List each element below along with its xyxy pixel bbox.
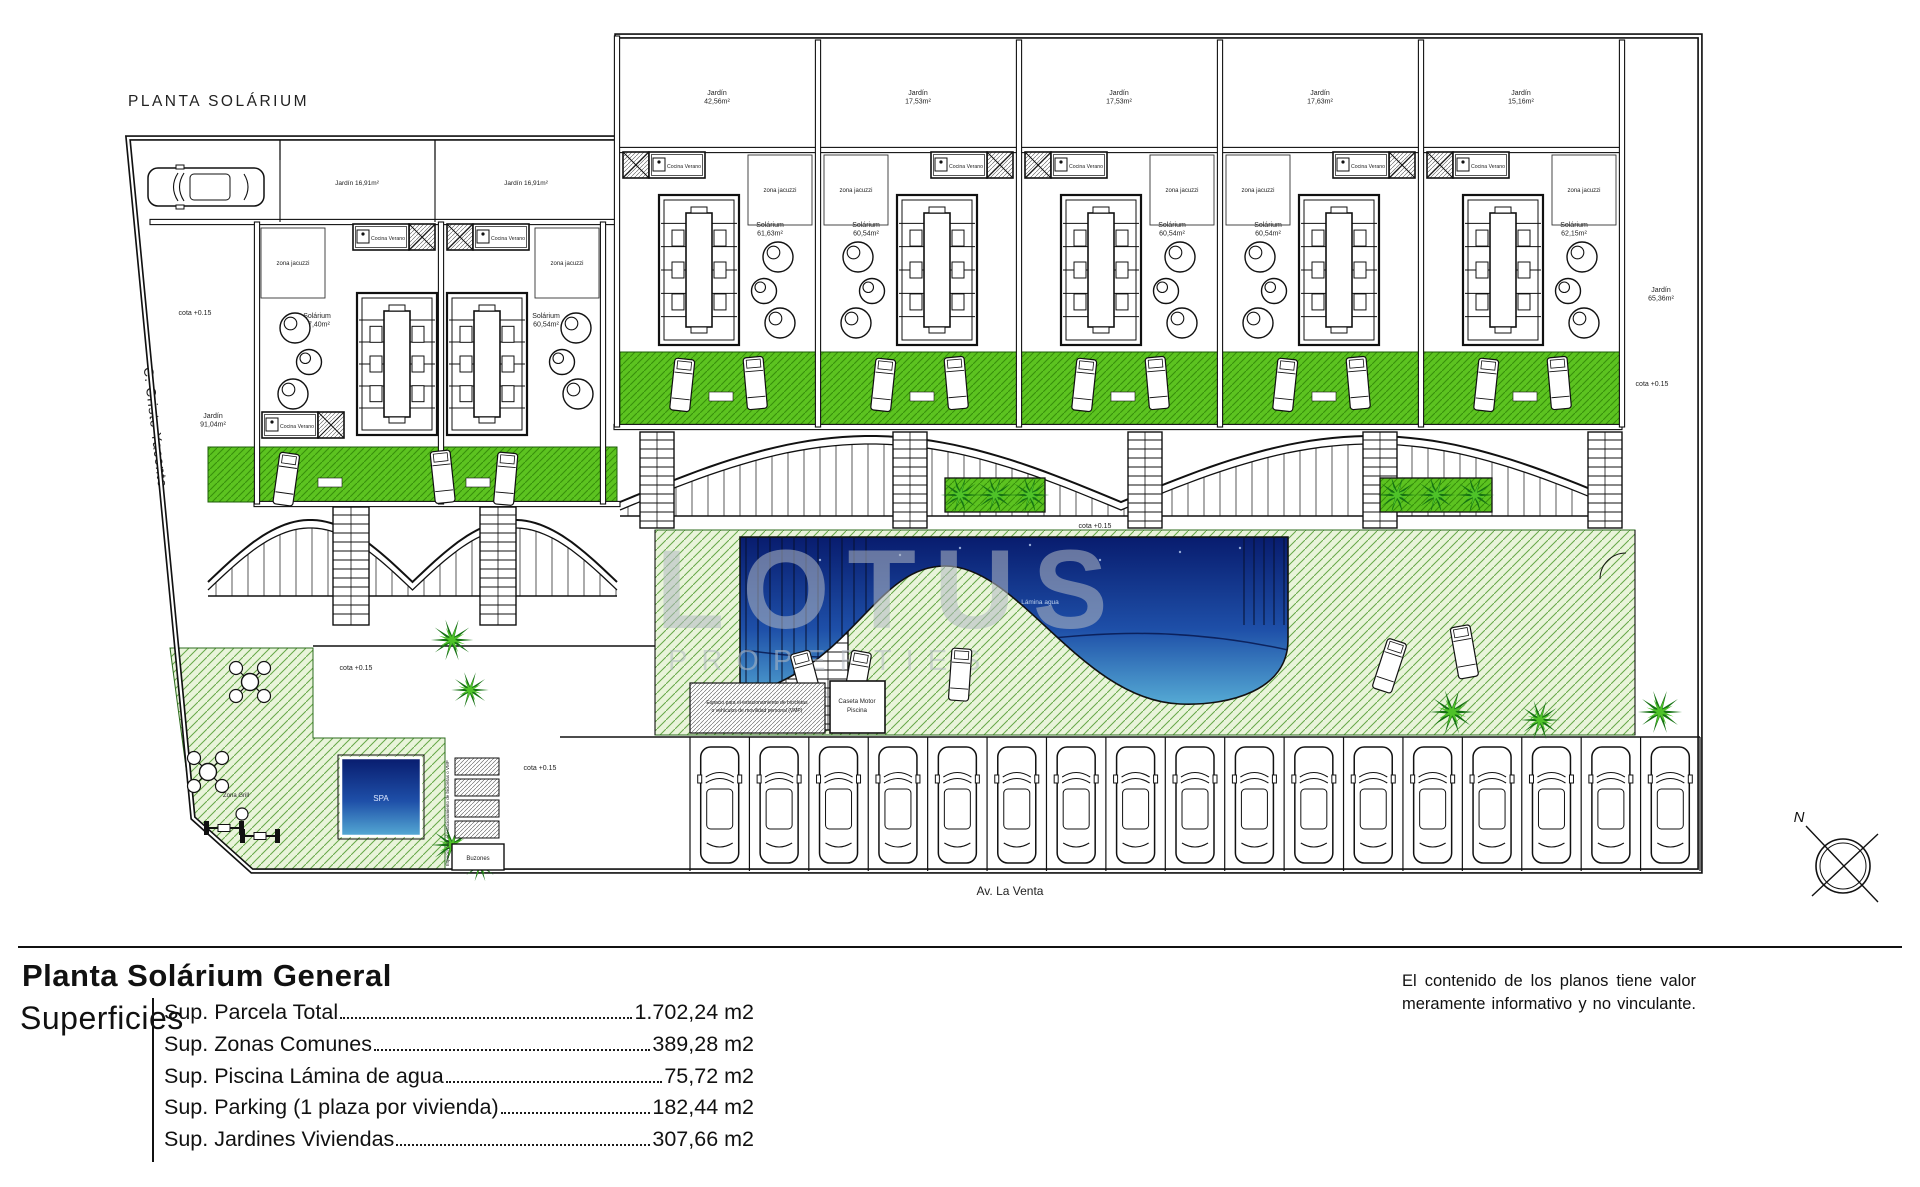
parked-car — [1292, 747, 1336, 863]
pergola-dining — [447, 293, 527, 435]
summer-kitchen: Cocina Verano — [1453, 152, 1509, 178]
svg-text:zona jacuzzi: zona jacuzzi — [763, 188, 796, 194]
legend-title: Planta Solárium General — [22, 958, 392, 994]
svg-text:cota +0.15: cota +0.15 — [524, 765, 557, 772]
svg-text:cota +0.15: cota +0.15 — [179, 310, 212, 317]
caseta-label-2: Piscina — [847, 707, 868, 714]
round-daybed — [1556, 279, 1581, 304]
wave-canopy — [208, 520, 617, 596]
summer-kitchen: Cocina Verano — [1333, 152, 1389, 178]
svg-text:Jardín 16,91m²: Jardín 16,91m² — [504, 180, 549, 187]
svg-text:Cocina Verano: Cocina Verano — [491, 236, 525, 242]
svg-text:Jardín42,56m²: Jardín42,56m² — [704, 90, 730, 106]
legend-rows: Sup. Parcela Total 1.702,24 m2Sup. Zonas… — [164, 1000, 754, 1159]
svg-text:Jardín 16,91m²: Jardín 16,91m² — [335, 180, 380, 187]
parked-car — [1648, 747, 1692, 863]
svg-text:zona jacuzzi: zona jacuzzi — [276, 261, 309, 267]
pergola-dining — [357, 293, 437, 435]
parked-car — [935, 747, 979, 863]
svg-text:Jardín65,36m²: Jardín65,36m² — [1648, 287, 1674, 303]
disclaimer-line-1: El contenido de los planos tiene valor — [1402, 970, 1696, 993]
round-daybed — [1262, 279, 1287, 304]
svg-text:Cocina Verano: Cocina Verano — [371, 236, 405, 242]
parked-car — [1411, 747, 1455, 863]
svg-text:Cocina Verano: Cocina Verano — [1351, 164, 1385, 170]
svg-text:Solárium61,63m²: Solárium61,63m² — [756, 222, 784, 238]
svg-text:cota +0.15: cota +0.15 — [1636, 381, 1669, 388]
round-daybed — [278, 379, 308, 409]
street-label-bottom: Av. La Venta — [977, 884, 1044, 898]
duct-box — [987, 152, 1013, 178]
duct-box — [447, 224, 473, 250]
palm-planters — [941, 476, 1495, 513]
summer-kitchen: Cocina Verano — [931, 152, 987, 178]
svg-text:Jardín17,63m²: Jardín17,63m² — [1307, 90, 1333, 106]
stairs — [640, 432, 674, 528]
sun-lounger — [1145, 356, 1169, 410]
sun-lounger — [1547, 356, 1571, 410]
legend-row: Sup. Parcela Total 1.702,24 m2 — [164, 1000, 754, 1032]
jacuzzi-zone: zona jacuzzi — [1552, 155, 1616, 225]
caseta-label: Caseta Motor — [838, 698, 875, 705]
stairs — [480, 507, 516, 625]
svg-text:Jardín17,53m²: Jardín17,53m² — [905, 90, 931, 106]
round-daybed — [280, 313, 310, 343]
dotted-leader — [446, 1081, 663, 1083]
stairs — [1588, 432, 1622, 528]
watermark-line-1: LOTUS — [656, 527, 1126, 652]
round-daybed — [550, 350, 575, 375]
legend-row-value: 75,72 m2 — [664, 1064, 754, 1089]
legend-row-value: 1.702,24 m2 — [634, 1000, 754, 1025]
disclaimer-line-2: meramente informativo y no vinculante. — [1402, 993, 1696, 1016]
sun-lounger — [948, 648, 972, 701]
watermark-line-2: PROPERTIES — [668, 645, 994, 677]
legend-row-label: Sup. Jardines Viviendas — [164, 1127, 394, 1152]
compass-north-label: N — [1794, 809, 1805, 826]
legend-row-label: Sup. Piscina Lámina de agua — [164, 1064, 444, 1089]
round-daybed — [561, 313, 591, 343]
legend-row: Sup. Zonas Comunes 389,28 m2 — [164, 1032, 754, 1064]
pergola-dining — [1061, 195, 1141, 345]
summer-kitchen: Cocina Verano — [353, 224, 409, 250]
svg-text:Cocina Verano: Cocina Verano — [280, 424, 314, 430]
site-plan: PLANTA SOLÁRIUM C. Cristo Yacente Av. La… — [0, 0, 1920, 950]
parked-car — [1114, 747, 1158, 863]
svg-text:Solárium60,54m²: Solárium60,54m² — [532, 313, 560, 329]
round-daybed — [1245, 242, 1275, 272]
svg-text:zona jacuzzi: zona jacuzzi — [839, 188, 872, 194]
superficies-label: Superficies — [20, 1000, 184, 1037]
parked-car — [817, 747, 861, 863]
legend-divider — [18, 946, 1902, 948]
unit: Cocina Veranozona jacuzziSolárium61,63m² — [623, 152, 812, 345]
summer-kitchen: Cocina Verano — [262, 412, 318, 438]
duct-box — [1025, 152, 1051, 178]
parked-car — [1529, 747, 1573, 863]
svg-text:cota +0.15: cota +0.15 — [340, 665, 373, 672]
stairs — [893, 432, 927, 528]
pergola-dining — [659, 195, 739, 345]
svg-text:Solárium62,15m²: Solárium62,15m² — [1560, 222, 1588, 238]
svg-text:Jardín15,16m²: Jardín15,16m² — [1508, 90, 1534, 106]
svg-text:Solárium60,54m²: Solárium60,54m² — [852, 222, 880, 238]
summer-kitchen: Cocina Verano — [473, 224, 529, 250]
summer-kitchen: Cocina Verano — [649, 152, 705, 178]
svg-text:zona jacuzzi: zona jacuzzi — [1567, 188, 1600, 194]
pergola-dining — [1463, 195, 1543, 345]
svg-text:zona jacuzzi: zona jacuzzi — [1241, 188, 1274, 194]
parked-car — [1173, 747, 1217, 863]
stairs — [333, 507, 369, 625]
svg-text:Cocina Verano: Cocina Verano — [1069, 164, 1103, 170]
jacuzzi-zone: zona jacuzzi — [1226, 155, 1290, 225]
sun-lounger — [743, 356, 767, 410]
svg-text:Jardín17,53m²: Jardín17,53m² — [1106, 90, 1132, 106]
parked-car — [1589, 747, 1633, 863]
pergola-dining — [897, 195, 977, 345]
svg-text:zona jacuzzi: zona jacuzzi — [1165, 188, 1198, 194]
round-daybed — [1165, 242, 1195, 272]
palm-tree — [431, 620, 474, 660]
duct-box — [623, 152, 649, 178]
round-daybed — [1569, 308, 1599, 338]
duct-box — [1427, 152, 1453, 178]
round-daybed — [1167, 308, 1197, 338]
jacuzzi-zone: zona jacuzzi — [261, 228, 325, 298]
unit: Cocina Veranozona jacuzziSolárium62,15m² — [1427, 152, 1616, 345]
jacuzzi-zone: zona jacuzzi — [535, 228, 599, 298]
legend-row-label: Sup. Parking (1 plaza por vivienda) — [164, 1095, 499, 1120]
parked-car — [148, 165, 264, 209]
stairs — [1128, 432, 1162, 528]
compass-rose: N — [1794, 809, 1878, 902]
svg-text:Zona Grill: Zona Grill — [223, 793, 249, 799]
duct-box — [409, 224, 435, 250]
parked-car — [1351, 747, 1395, 863]
round-daybed — [843, 242, 873, 272]
round-daybed — [752, 279, 777, 304]
svg-text:Cocina Verano: Cocina Verano — [949, 164, 983, 170]
dotted-leader — [374, 1049, 650, 1051]
dotted-leader — [340, 1017, 632, 1019]
legend-row-value: 307,66 m2 — [652, 1127, 754, 1152]
round-daybed — [1567, 242, 1597, 272]
parked-car — [995, 747, 1039, 863]
round-daybed — [1154, 279, 1179, 304]
bike-parking-label-2: o vehículos de movilidad personal (VMP) — [712, 708, 803, 714]
round-daybed — [765, 308, 795, 338]
jacuzzi-zone: zona jacuzzi — [824, 155, 888, 225]
round-daybed — [841, 308, 871, 338]
round-daybed — [860, 279, 885, 304]
jacuzzi-zone: zona jacuzzi — [748, 155, 812, 225]
spa-label: SPA — [373, 794, 389, 803]
buzones-label: Buzones — [466, 856, 489, 862]
svg-text:zona jacuzzi: zona jacuzzi — [550, 261, 583, 267]
duct-box — [1389, 152, 1415, 178]
legend-row: Sup. Parking (1 plaza por vivienda)182,4… — [164, 1095, 754, 1127]
summer-kitchen: Cocina Verano — [1051, 152, 1107, 178]
duct-box — [318, 412, 344, 438]
parked-car — [1054, 747, 1098, 863]
parked-car — [698, 747, 742, 863]
parked-car — [1232, 747, 1276, 863]
plan-title: PLANTA SOLÁRIUM — [128, 93, 309, 110]
round-daybed — [763, 242, 793, 272]
svg-text:Cocina Verano: Cocina Verano — [1471, 164, 1505, 170]
jacuzzi-zone: zona jacuzzi — [1150, 155, 1214, 225]
round-daybed — [563, 379, 593, 409]
sun-lounger — [493, 452, 517, 506]
legend-rule — [152, 998, 154, 1162]
svg-text:Jardín91,04m²: Jardín91,04m² — [200, 413, 226, 429]
palm-tree — [1638, 691, 1682, 733]
unit: Cocina Veranozona jacuzziSolárium60,54m² — [1226, 152, 1415, 345]
legend-row: Sup. Piscina Lámina de agua75,72 m2 — [164, 1064, 754, 1096]
legend-row: Sup. Jardines Viviendas307,66 m2 — [164, 1127, 754, 1159]
unit: Cocina Veranozona jacuzziSolárium60,54m² — [824, 152, 1013, 345]
unit: Cocina Veranozona jacuzziSolárium60,54m² — [1025, 152, 1214, 345]
spa-pool: SPA — [338, 755, 424, 839]
sun-lounger — [1346, 356, 1370, 410]
bike-parking-label: Espacio para el estacionamiento de bicic… — [706, 700, 808, 706]
parked-car — [876, 747, 920, 863]
legend-row-label: Sup. Parcela Total — [164, 1000, 338, 1025]
parked-car — [1470, 747, 1514, 863]
round-daybed — [297, 350, 322, 375]
legend-row-value: 389,28 m2 — [652, 1032, 754, 1057]
bike-side-label: Espacio para el estacionamiento de bicic… — [445, 760, 450, 866]
svg-text:Cocina Verano: Cocina Verano — [667, 164, 701, 170]
dotted-leader — [396, 1144, 650, 1146]
sun-lounger — [944, 356, 968, 410]
dotted-leader — [501, 1112, 651, 1114]
disclaimer: El contenido de los planos tiene valor m… — [1402, 970, 1696, 1017]
parked-car — [757, 747, 801, 863]
svg-text:cota +0.15: cota +0.15 — [1079, 523, 1112, 530]
pergola-dining — [1299, 195, 1379, 345]
legend-row-value: 182,44 m2 — [652, 1095, 754, 1120]
legend-row-label: Sup. Zonas Comunes — [164, 1032, 372, 1057]
round-daybed — [1243, 308, 1273, 338]
svg-text:Solárium60,54m²: Solárium60,54m² — [1254, 222, 1282, 238]
palm-tree — [451, 672, 488, 708]
svg-text:Solárium60,54m²: Solárium60,54m² — [1158, 222, 1186, 238]
